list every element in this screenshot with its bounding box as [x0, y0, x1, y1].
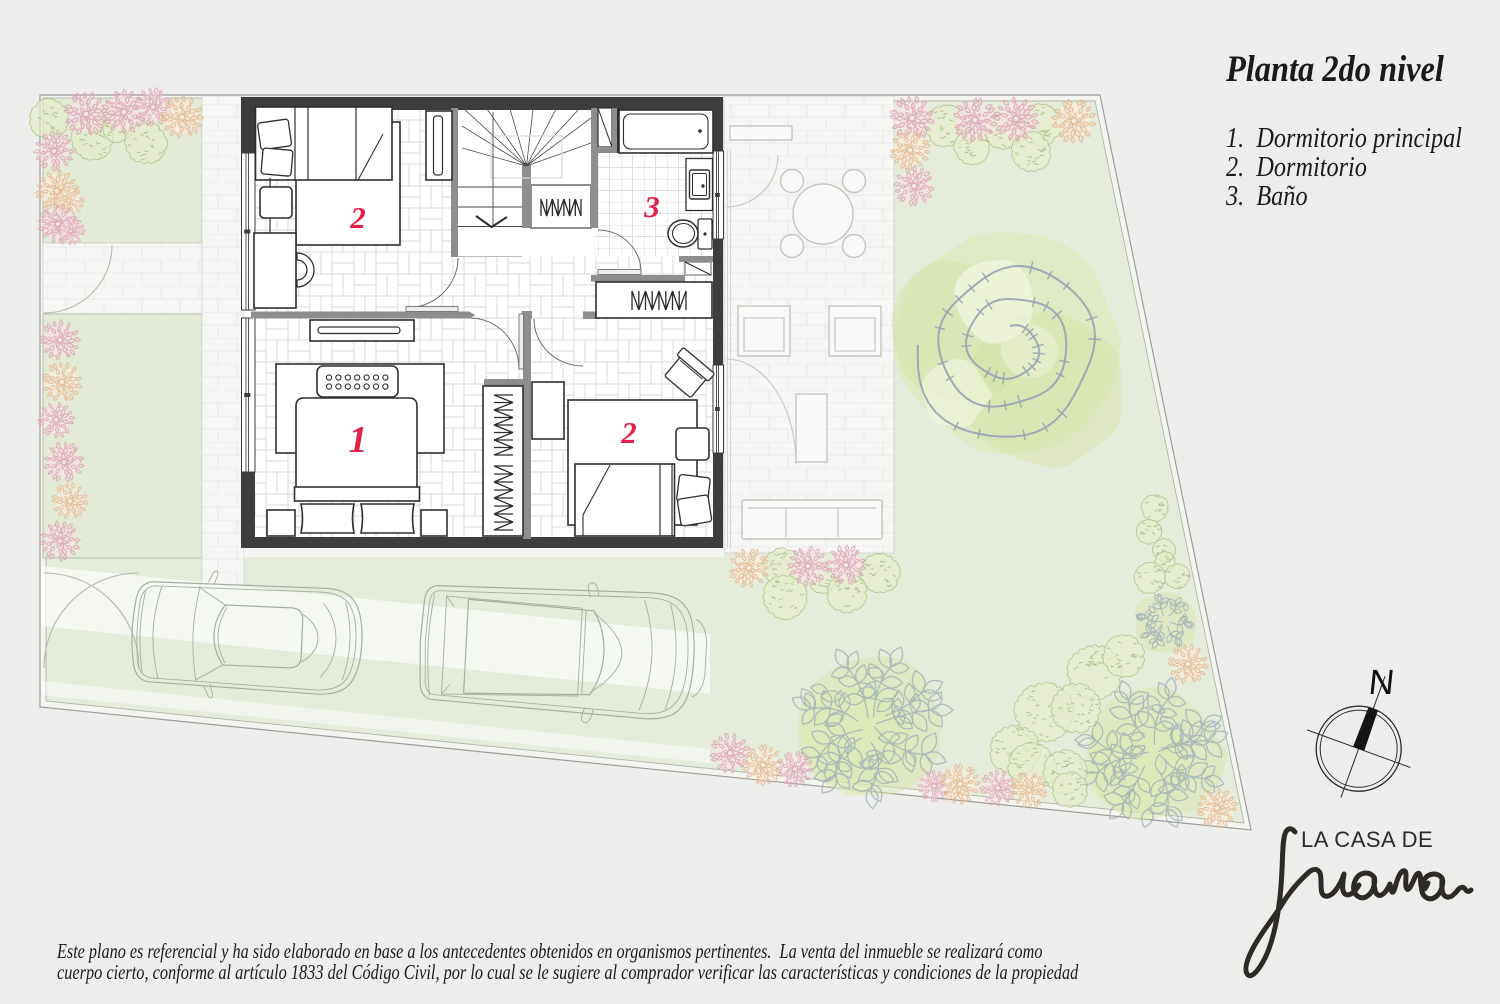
svg-text:1: 1 — [349, 419, 368, 461]
svg-text:2: 2 — [349, 200, 366, 235]
svg-text:3: 3 — [643, 189, 660, 224]
svg-text:2: 2 — [620, 415, 637, 450]
